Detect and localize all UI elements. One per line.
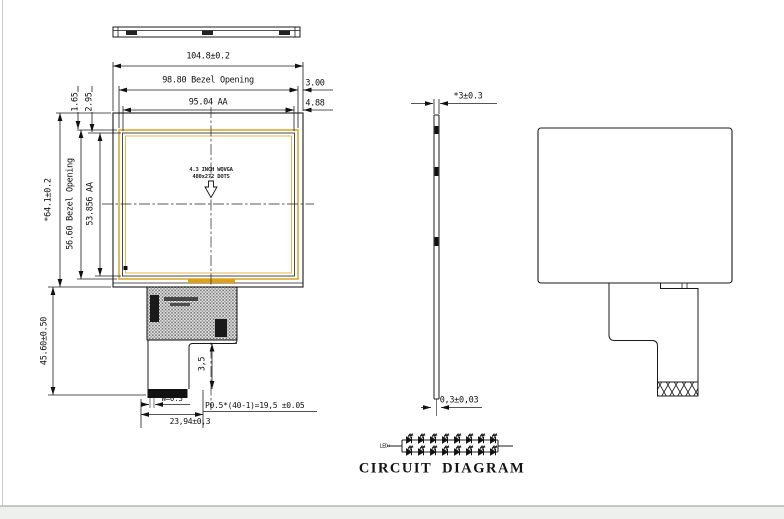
side-view-tabs: [435, 126, 439, 246]
led-symbol: [467, 446, 473, 455]
dim-fpc-thickness: 0,3±0,03: [440, 397, 479, 406]
back-view-connector: [658, 382, 699, 396]
led-symbol: [419, 434, 425, 443]
fpc-print-line1: [164, 297, 198, 301]
dim-right-top: 3.00: [305, 80, 324, 89]
top-view: [113, 27, 300, 37]
circuit-diagram: [387, 434, 513, 455]
drawing-linework: [0, 0, 784, 519]
side-view: [411, 99, 497, 416]
led-symbol: [407, 434, 413, 443]
back-view: [538, 128, 732, 396]
display-spec-line1: 4.3 INCH WQVGA: [189, 168, 233, 174]
circuit-diagram-title: CIRCUIT DIAGRAM: [359, 461, 525, 476]
dim-bezel-width: 98.80 Bezel Opening: [162, 77, 254, 86]
fpc-component-left: [150, 295, 159, 322]
led-symbol: [455, 446, 461, 455]
dim-left-offset-1: 1.65: [72, 92, 81, 111]
dim-bezel-height: 56.60 Bezel Opening: [67, 158, 76, 250]
led-symbol: [479, 434, 485, 443]
dim-connector-width: 23,94±0,3: [170, 418, 211, 426]
led-symbol: [443, 446, 449, 455]
dim-thickness: *3±0.3: [454, 93, 483, 102]
pin1-marker: [124, 266, 128, 270]
display-spec-line2: 480x272 DOTS: [192, 175, 229, 181]
led-symbol: [467, 434, 473, 443]
engineering-drawing: 104.8±0.2 98.80 Bezel Opening 95.04 AA 3…: [0, 0, 784, 519]
led-symbol: [443, 434, 449, 443]
front-view: [102, 107, 314, 410]
fpc-print-line2: [170, 303, 190, 306]
dim-outline-width: 104.8±0.2: [186, 53, 229, 62]
led-symbol: [491, 446, 497, 455]
led-symbol: [431, 446, 437, 455]
dim-outline-height: *64.1±0.2: [45, 178, 54, 221]
dim-pin-pitch: P0.5*(40-1)=19,5 ±0.05: [205, 402, 304, 410]
led-symbol: [479, 446, 485, 455]
led-symbol: [419, 446, 425, 455]
dim-right-bottom: 4.88: [305, 100, 324, 109]
led-lead-label: LED+: [380, 444, 391, 449]
led-symbol: [431, 434, 437, 443]
dim-aa-height: 53.856 AA: [87, 182, 96, 225]
module-outline: [113, 113, 303, 287]
led-symbol: [407, 446, 413, 455]
led-symbol: [455, 434, 461, 443]
dim-fpc-step: 3,5: [199, 357, 208, 371]
dim-tail-height: 45.60±0.50: [41, 317, 50, 365]
dim-left-offset-2: 2.95: [86, 92, 95, 111]
led-symbol: [491, 434, 497, 443]
fpc-region: [147, 287, 237, 398]
dim-aa-width: 95.04 AA: [189, 99, 228, 108]
dimensions-bottom: [141, 344, 317, 429]
bottom-tab: [188, 280, 235, 284]
dim-contact-width: W=0.3: [161, 395, 182, 403]
fpc-component-right: [215, 319, 227, 337]
